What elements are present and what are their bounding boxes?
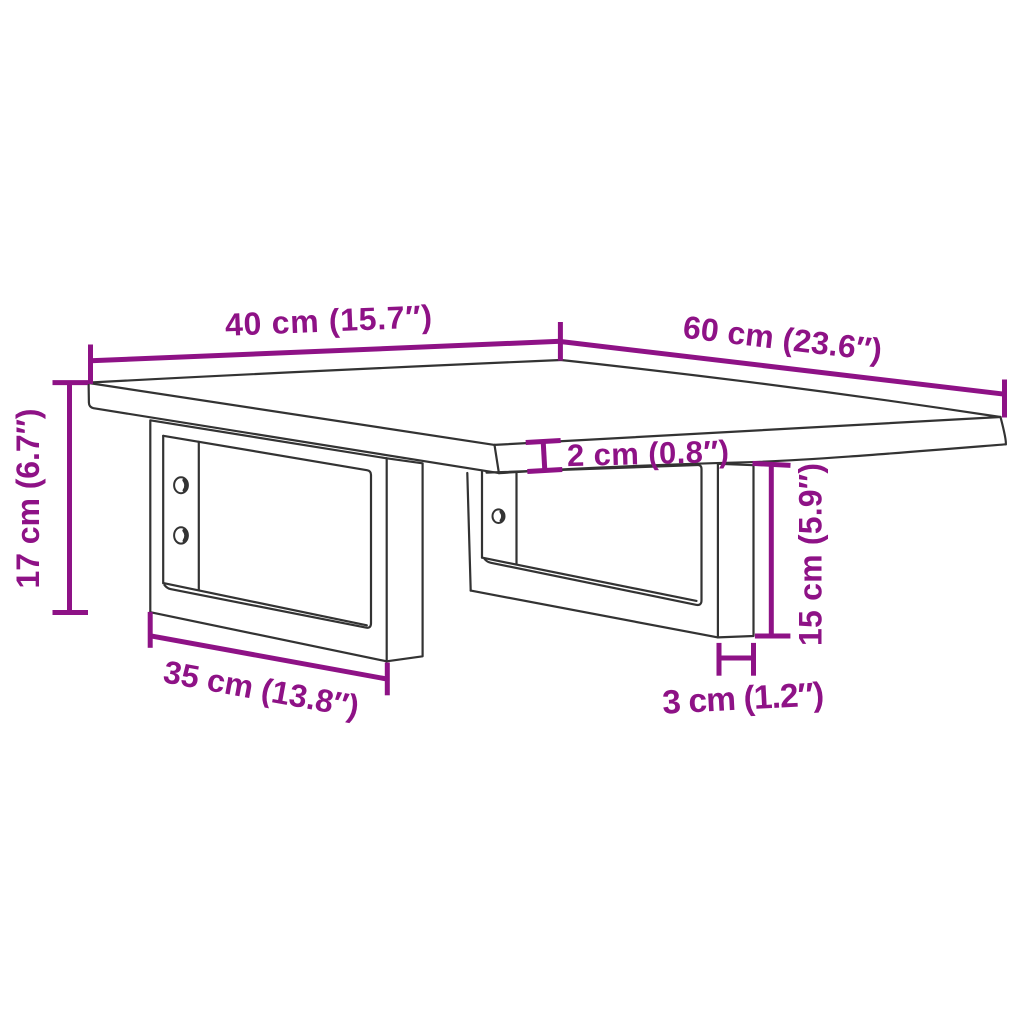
svg-text:15 cm (5.9″): 15 cm (5.9″) xyxy=(793,463,829,646)
svg-text:2 cm (0.8″): 2 cm (0.8″) xyxy=(566,434,729,473)
svg-text:17 cm (6.7″): 17 cm (6.7″) xyxy=(10,409,46,589)
